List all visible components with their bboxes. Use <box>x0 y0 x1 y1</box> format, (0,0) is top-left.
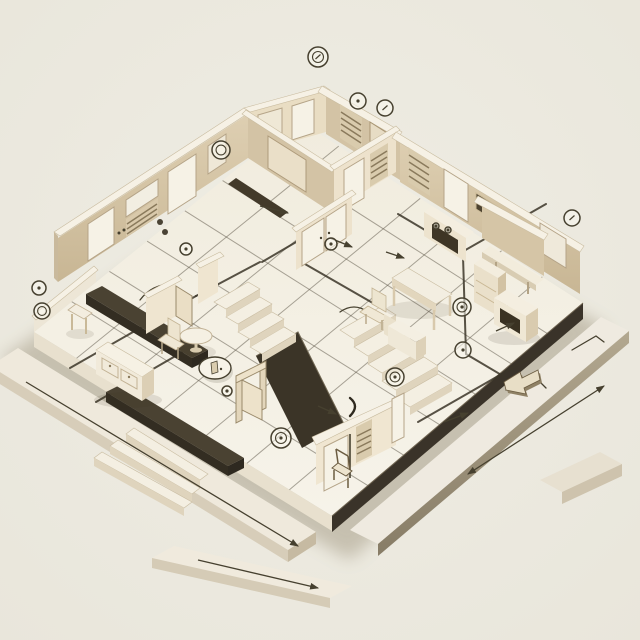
marker-icon <box>308 47 328 67</box>
marker-icon <box>34 303 50 319</box>
marker-icon <box>271 428 291 448</box>
illustration-canvas <box>0 0 640 640</box>
marker-icon <box>455 342 471 358</box>
marker-icon <box>157 219 163 225</box>
marker-icon <box>325 238 337 250</box>
marker-icon <box>162 229 168 235</box>
marker-icon <box>350 93 366 109</box>
marker-icon <box>564 210 580 226</box>
door-panel <box>292 99 314 140</box>
marker-icon <box>212 141 230 159</box>
marker-icon <box>433 223 439 229</box>
marker-icon <box>386 368 404 386</box>
marker-icon <box>377 100 393 116</box>
marker-icon <box>222 386 232 396</box>
marker-icon <box>180 243 192 255</box>
marker-icon <box>32 281 46 295</box>
door-jamb <box>392 393 404 443</box>
marker-icon <box>445 227 451 233</box>
floor-plan-illustration <box>0 0 640 640</box>
marker-icon <box>453 298 471 316</box>
